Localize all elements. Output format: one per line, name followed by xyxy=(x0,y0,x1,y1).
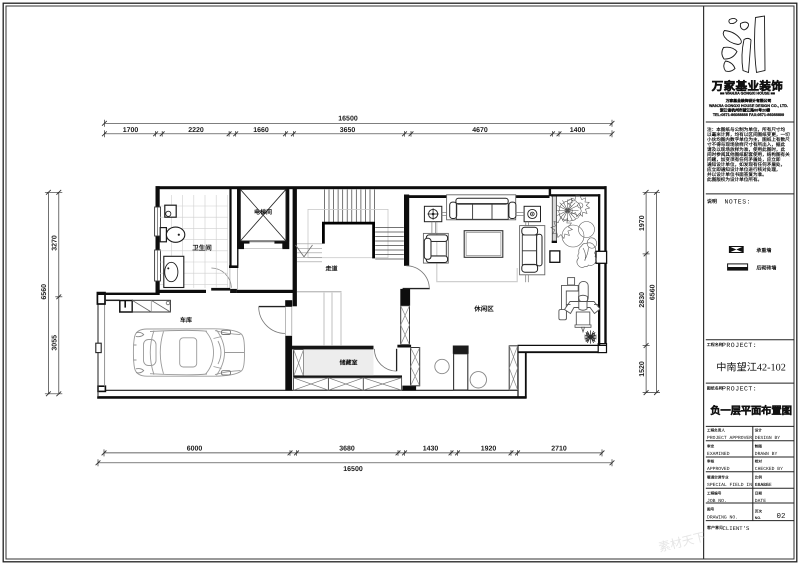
svg-text:2220: 2220 xyxy=(188,127,204,134)
svg-text:JOB NO.: JOB NO. xyxy=(707,498,727,504)
svg-text:NOTES:: NOTES: xyxy=(725,199,752,206)
svg-text:PROJECT:: PROJECT: xyxy=(722,342,757,349)
svg-text:DESIGN BY: DESIGN BY xyxy=(755,435,781,441)
svg-text:中南望江42-102: 中南望江42-102 xyxy=(716,362,786,374)
svg-text:1660: 1660 xyxy=(253,127,269,134)
svg-text:CLIENT'S: CLIENT'S xyxy=(723,525,750,532)
svg-text:■■ WANJIA GONGXI HOUSE ■■: ■■ WANJIA GONGXI HOUSE ■■ xyxy=(720,92,775,96)
svg-text:卫生间: 卫生间 xyxy=(192,244,212,252)
svg-text:16500: 16500 xyxy=(343,466,363,473)
svg-text:3680: 3680 xyxy=(339,445,355,452)
svg-text:审定: 审定 xyxy=(707,444,715,449)
svg-text:NO.: NO. xyxy=(755,516,761,520)
svg-text:PROJECT:: PROJECT: xyxy=(722,385,757,392)
svg-text:WANJIA GONGXI HOUSE DESIGN CO.: WANJIA GONGXI HOUSE DESIGN CO., LTD. xyxy=(709,104,788,108)
svg-text:APPROVED: APPROVED xyxy=(707,466,730,472)
svg-text:校对: 校对 xyxy=(755,459,763,464)
svg-text:4670: 4670 xyxy=(472,127,488,134)
svg-text:CHECKED BY: CHECKED BY xyxy=(755,466,783,472)
svg-text:走道: 走道 xyxy=(324,265,337,273)
svg-text:DATE: DATE xyxy=(755,498,766,504)
svg-text:休闲区: 休闲区 xyxy=(473,305,494,313)
svg-text:比例: 比例 xyxy=(755,475,763,480)
svg-text:1970: 1970 xyxy=(639,215,646,231)
svg-text:万家基业装饰设计有限公司: 万家基业装饰设计有限公司 xyxy=(725,98,772,103)
svg-text:页次: 页次 xyxy=(755,509,763,514)
svg-text:16500: 16500 xyxy=(338,116,358,123)
svg-text:1430: 1430 xyxy=(423,445,439,452)
svg-text:PROJECT APPROVER: PROJECT APPROVER xyxy=(707,435,752,441)
svg-text:承重墙: 承重墙 xyxy=(756,247,771,254)
svg-text:3270: 3270 xyxy=(52,235,59,251)
svg-text:2710: 2710 xyxy=(551,445,567,452)
svg-text:后砌砖墙: 后砌砖墙 xyxy=(756,264,776,271)
svg-text:审核: 审核 xyxy=(707,459,715,464)
svg-text:车库: 车库 xyxy=(180,316,192,324)
svg-text:1920: 1920 xyxy=(481,445,497,452)
svg-text:3650: 3650 xyxy=(340,127,356,134)
svg-text:图号: 图号 xyxy=(707,508,715,512)
svg-text:6000: 6000 xyxy=(187,445,203,452)
svg-text:图纸名称: 图纸名称 xyxy=(707,385,723,390)
svg-text:工程负责人: 工程负责人 xyxy=(707,428,725,433)
svg-text:DRAWN BY: DRAWN BY xyxy=(755,451,778,457)
svg-text:1400: 1400 xyxy=(570,127,586,134)
svg-text:说明: 说明 xyxy=(707,198,717,205)
svg-text:3055: 3055 xyxy=(52,335,59,351)
svg-text:设计: 设计 xyxy=(755,428,763,433)
svg-text:此图版权为设计单位所有。: 此图版权为设计单位所有。 xyxy=(707,176,762,182)
svg-text:电梯间: 电梯间 xyxy=(254,208,272,216)
svg-text:工程编号: 工程编号 xyxy=(707,491,722,496)
svg-text:1520: 1520 xyxy=(639,361,646,377)
svg-text:储藏室: 储藏室 xyxy=(339,359,357,367)
svg-text:负一层平面布置图: 负一层平面布置图 xyxy=(710,405,792,417)
svg-text:6560: 6560 xyxy=(41,284,48,300)
svg-text:2830: 2830 xyxy=(639,292,646,308)
svg-text:日期: 日期 xyxy=(755,491,763,496)
svg-text:浙江省杭州市望江路88号20楼: 浙江省杭州市望江路88号20楼 xyxy=(720,107,770,112)
svg-text:DRAWING NO.: DRAWING NO. xyxy=(707,515,738,521)
svg-text:02: 02 xyxy=(776,512,785,521)
svg-text:1700: 1700 xyxy=(123,127,139,134)
svg-text:EXAMINED: EXAMINED xyxy=(707,451,730,457)
svg-text:工程名称: 工程名称 xyxy=(707,342,723,347)
svg-text:TEL:0571-86088888 FAX:0571-86: TEL:0571-86088888 FAX:0571-86088899 xyxy=(713,113,784,117)
svg-text:6560: 6560 xyxy=(649,284,656,300)
svg-text:制图: 制图 xyxy=(755,444,763,449)
svg-text:客户意见: 客户意见 xyxy=(706,525,723,530)
svg-text:SCALE: SCALE xyxy=(755,482,769,488)
svg-text:暖通空调专业: 暖通空调专业 xyxy=(707,475,729,480)
